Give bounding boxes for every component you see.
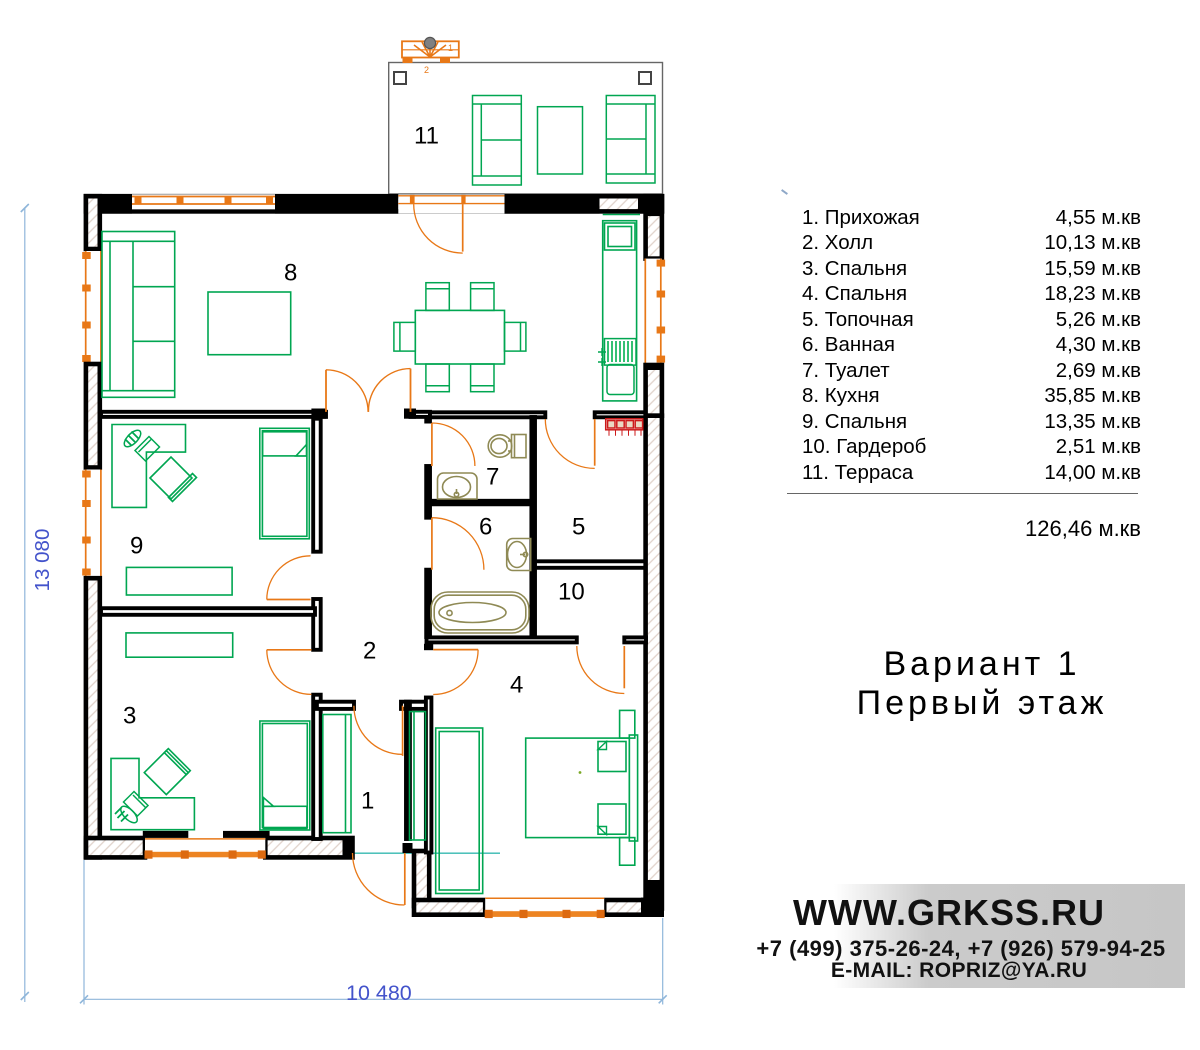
svg-text:2: 2 xyxy=(424,65,429,75)
svg-text:5: 5 xyxy=(572,514,585,541)
svg-text:13 080: 13 080 xyxy=(31,529,54,592)
svg-text:7: 7 xyxy=(486,464,499,491)
svg-text:1: 1 xyxy=(448,43,453,53)
svg-text:8: 8 xyxy=(284,260,297,287)
svg-text:4: 4 xyxy=(510,672,523,699)
svg-text:9: 9 xyxy=(130,533,143,560)
svg-text:2: 2 xyxy=(363,638,376,665)
svg-text:6: 6 xyxy=(479,514,492,541)
svg-text:1: 1 xyxy=(361,788,374,815)
svg-text:10: 10 xyxy=(558,579,585,606)
svg-text:11: 11 xyxy=(414,123,439,150)
svg-text:3: 3 xyxy=(123,703,136,730)
svg-text:10 480: 10 480 xyxy=(346,981,412,1005)
